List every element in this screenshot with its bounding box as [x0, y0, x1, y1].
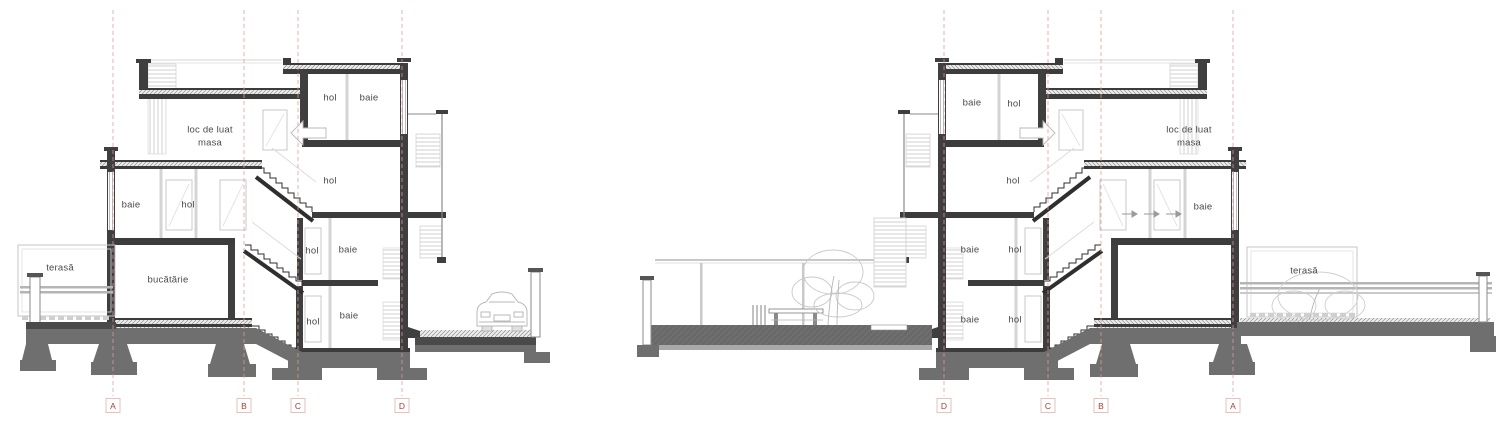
room-label-baie: baie	[961, 245, 980, 256]
grid-marker-a: A	[106, 398, 121, 413]
room-label-hol: hol	[306, 317, 319, 328]
grid-marker-a: A	[1226, 398, 1241, 413]
section-drawing-canvas	[0, 0, 1500, 422]
room-label-hol: hol	[1006, 176, 1019, 187]
car-icon	[477, 292, 527, 331]
right-terrace	[1237, 247, 1496, 352]
grid-marker-d: D	[395, 398, 410, 413]
room-label-terrace: terasă	[46, 263, 74, 274]
room-label-baie: baie	[339, 245, 358, 256]
grid-marker-b: B	[1094, 398, 1109, 413]
room-label-baie: baie	[961, 315, 980, 326]
room-label-terrace: terasă	[1290, 266, 1318, 277]
grid-marker-c: C	[1041, 398, 1056, 413]
grid-marker-b: B	[237, 398, 252, 413]
room-label-baie: baie	[122, 200, 141, 211]
right-section-drawing	[637, 58, 1496, 380]
room-label-baie: baie	[1194, 202, 1213, 213]
room-label-kitchen: bucătărie	[148, 275, 189, 286]
room-label-baie: baie	[963, 98, 982, 109]
room-label-hol: hol	[323, 93, 336, 104]
room-label-hol: hol	[1007, 99, 1020, 110]
room-label-baie: baie	[340, 311, 359, 322]
room-label-hol: hol	[1008, 245, 1021, 256]
room-label-hol: hol	[323, 176, 336, 187]
architectural-section-sheet: hol baie loc de luat masa hol baie hol h…	[0, 0, 1500, 422]
bench-icon	[753, 305, 823, 325]
grid-marker-c: C	[291, 398, 306, 413]
grid-marker-d: D	[937, 398, 952, 413]
room-label-dining: loc de luat masa	[1154, 124, 1224, 151]
garden	[637, 218, 932, 357]
left-section-drawing	[18, 58, 550, 380]
room-label-hol: hol	[1008, 315, 1021, 326]
room-label-dining: loc de luat masa	[175, 124, 245, 151]
room-label-hol: hol	[181, 200, 194, 211]
room-label-hol: hol	[305, 246, 318, 257]
room-label-baie: baie	[360, 93, 379, 104]
